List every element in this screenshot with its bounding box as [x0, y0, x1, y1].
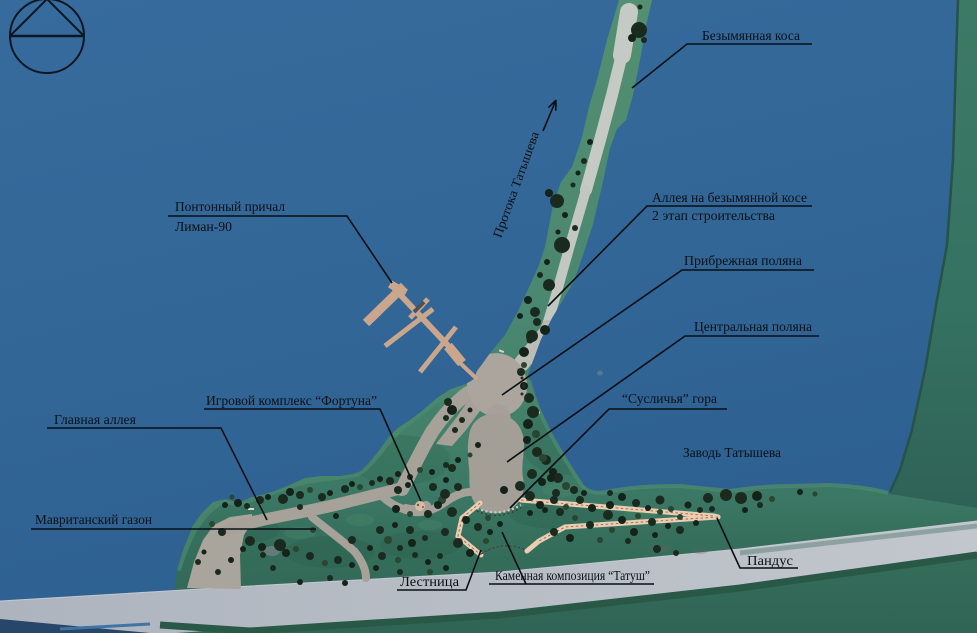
svg-text:2 этап строительства: 2 этап строительства — [652, 209, 776, 224]
svg-text:Безымянная коса: Безымянная коса — [702, 29, 801, 44]
svg-text:Центральная поляна: Центральная поляна — [694, 320, 813, 335]
svg-text:Главная аллея: Главная аллея — [54, 413, 137, 428]
svg-text:Мавританский газон: Мавританский газон — [35, 513, 152, 528]
svg-text:Каменная композиция “Татуш”: Каменная композиция “Татуш” — [495, 569, 650, 584]
svg-text:Понтонный причал: Понтонный причал — [175, 200, 285, 215]
svg-text:Игровой комплекс “Фортуна”: Игровой комплекс “Фортуна” — [206, 394, 377, 409]
svg-text:Аллея на безымянной косе: Аллея на безымянной косе — [652, 191, 807, 206]
svg-text:“Сусличья” гора: “Сусличья” гора — [622, 392, 718, 407]
svg-text:Лестница: Лестница — [400, 575, 460, 590]
svg-text:Прибрежная поляна: Прибрежная поляна — [684, 254, 803, 269]
svg-text:Лиман-90: Лиман-90 — [175, 220, 232, 235]
svg-text:Заводь Татышева: Заводь Татышева — [683, 446, 782, 461]
svg-text:Пандус: Пандус — [747, 554, 793, 569]
